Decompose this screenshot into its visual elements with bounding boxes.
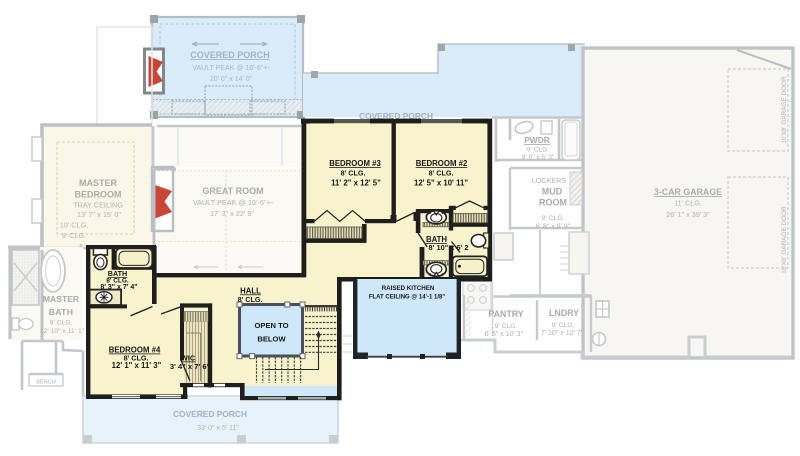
svg-text:COVERED PORCH: COVERED PORCH: [173, 409, 247, 419]
svg-text:10' CLG.: 10' CLG.: [60, 221, 89, 230]
svg-text:FLAT CEILING @ 14'-1 1/8": FLAT CEILING @ 14'-1 1/8": [369, 294, 446, 300]
svg-text:17' 3" x 22' 9": 17' 3" x 22' 9": [210, 209, 254, 218]
svg-text:BEDROOM #3: BEDROOM #3: [329, 159, 381, 168]
svg-text:BATH: BATH: [49, 307, 73, 317]
svg-text:9' CLG.: 9' CLG.: [542, 215, 565, 222]
svg-text:BELOW: BELOW: [257, 335, 286, 344]
svg-text:10'X8' GARAGE DOOR: 10'X8' GARAGE DOOR: [781, 76, 788, 144]
svg-text:BENCH: BENCH: [36, 380, 56, 386]
svg-text:TRAY CEILING: TRAY CEILING: [73, 201, 123, 210]
svg-text:MASTER: MASTER: [43, 294, 80, 304]
svg-text:26' 1" x 39' 3": 26' 1" x 39' 3": [666, 210, 710, 219]
svg-text:13' 7" x 15' 0": 13' 7" x 15' 0": [77, 210, 121, 219]
svg-text:7' 10" x 12' 7": 7' 10" x 12' 7": [541, 330, 584, 337]
svg-text:12' 1" x 11' 3": 12' 1" x 11' 3": [112, 361, 162, 370]
svg-text:8' 3" x 7' 4": 8' 3" x 7' 4": [100, 284, 137, 291]
svg-text:6' 5" x 10' 3": 6' 5" x 10' 3": [485, 331, 524, 338]
svg-text:8' CLG.: 8' CLG.: [238, 295, 263, 304]
svg-text:9' CLG.: 9' CLG.: [495, 323, 518, 330]
svg-text:RAISED KITCHEN: RAISED KITCHEN: [382, 285, 435, 292]
svg-text:VAULT PEAK @ 16'-6"+-: VAULT PEAK @ 16'-6"+-: [193, 198, 274, 207]
svg-text:PWDR: PWDR: [524, 135, 550, 145]
svg-text:BEDROOM #2: BEDROOM #2: [416, 159, 468, 168]
svg-text:9' CLG.: 9' CLG.: [62, 231, 87, 240]
svg-text:LNDRY: LNDRY: [549, 308, 579, 318]
svg-text:MUD: MUD: [542, 187, 563, 197]
svg-text:GREAT ROOM: GREAT ROOM: [202, 186, 263, 196]
svg-text:20' 0" x 14' 0": 20' 0" x 14' 0": [210, 76, 253, 83]
svg-text:6' 8" x 9' 9": 6' 8" x 9' 9": [536, 224, 571, 231]
svg-text:12' 10" x 11' 1": 12' 10" x 11' 1": [40, 328, 85, 335]
svg-text:9' 0" x 5' 3": 9' 0" x 5' 3": [522, 154, 555, 161]
svg-text:3-CAR GARAGE: 3-CAR GARAGE: [654, 187, 722, 197]
svg-text:PANTRY: PANTRY: [488, 309, 523, 319]
svg-text:BEDROOM: BEDROOM: [75, 190, 122, 200]
svg-text:9' CLG.: 9' CLG.: [552, 322, 575, 329]
svg-text:LOCKERS: LOCKERS: [532, 176, 567, 185]
svg-text:HALL: HALL: [240, 286, 261, 295]
svg-text:ROOM: ROOM: [539, 198, 567, 208]
svg-text:11' CLG.: 11' CLG.: [674, 199, 702, 208]
svg-text:3' 4" x 7' 6": 3' 4" x 7' 6": [170, 362, 211, 371]
svg-text:10'X8' GARAGE DOOR: 10'X8' GARAGE DOOR: [781, 206, 788, 274]
svg-text:9' CLG.: 9' CLG.: [50, 320, 73, 327]
svg-text:MASTER: MASTER: [79, 178, 118, 188]
svg-text:COVERED PORCH: COVERED PORCH: [190, 50, 270, 60]
svg-text:33' 0" x 5' 11": 33' 0" x 5' 11": [197, 425, 239, 432]
svg-text:VAULT PEAK @ 16'-6"+-: VAULT PEAK @ 16'-6"+-: [192, 65, 270, 72]
svg-text:11' 2" x 12' 5": 11' 2" x 12' 5": [331, 179, 381, 188]
svg-text:8' CLG.: 8' CLG.: [341, 169, 366, 178]
svg-text:8' 10" x 6' 2: 8' 10" x 6' 2: [429, 243, 469, 252]
svg-text:9' CLG.: 9' CLG.: [527, 147, 549, 154]
svg-text:8' CLG.: 8' CLG.: [429, 169, 454, 178]
svg-text:OPEN TO: OPEN TO: [254, 321, 288, 330]
svg-text:12' 5" x 10' 11": 12' 5" x 10' 11": [414, 179, 468, 188]
